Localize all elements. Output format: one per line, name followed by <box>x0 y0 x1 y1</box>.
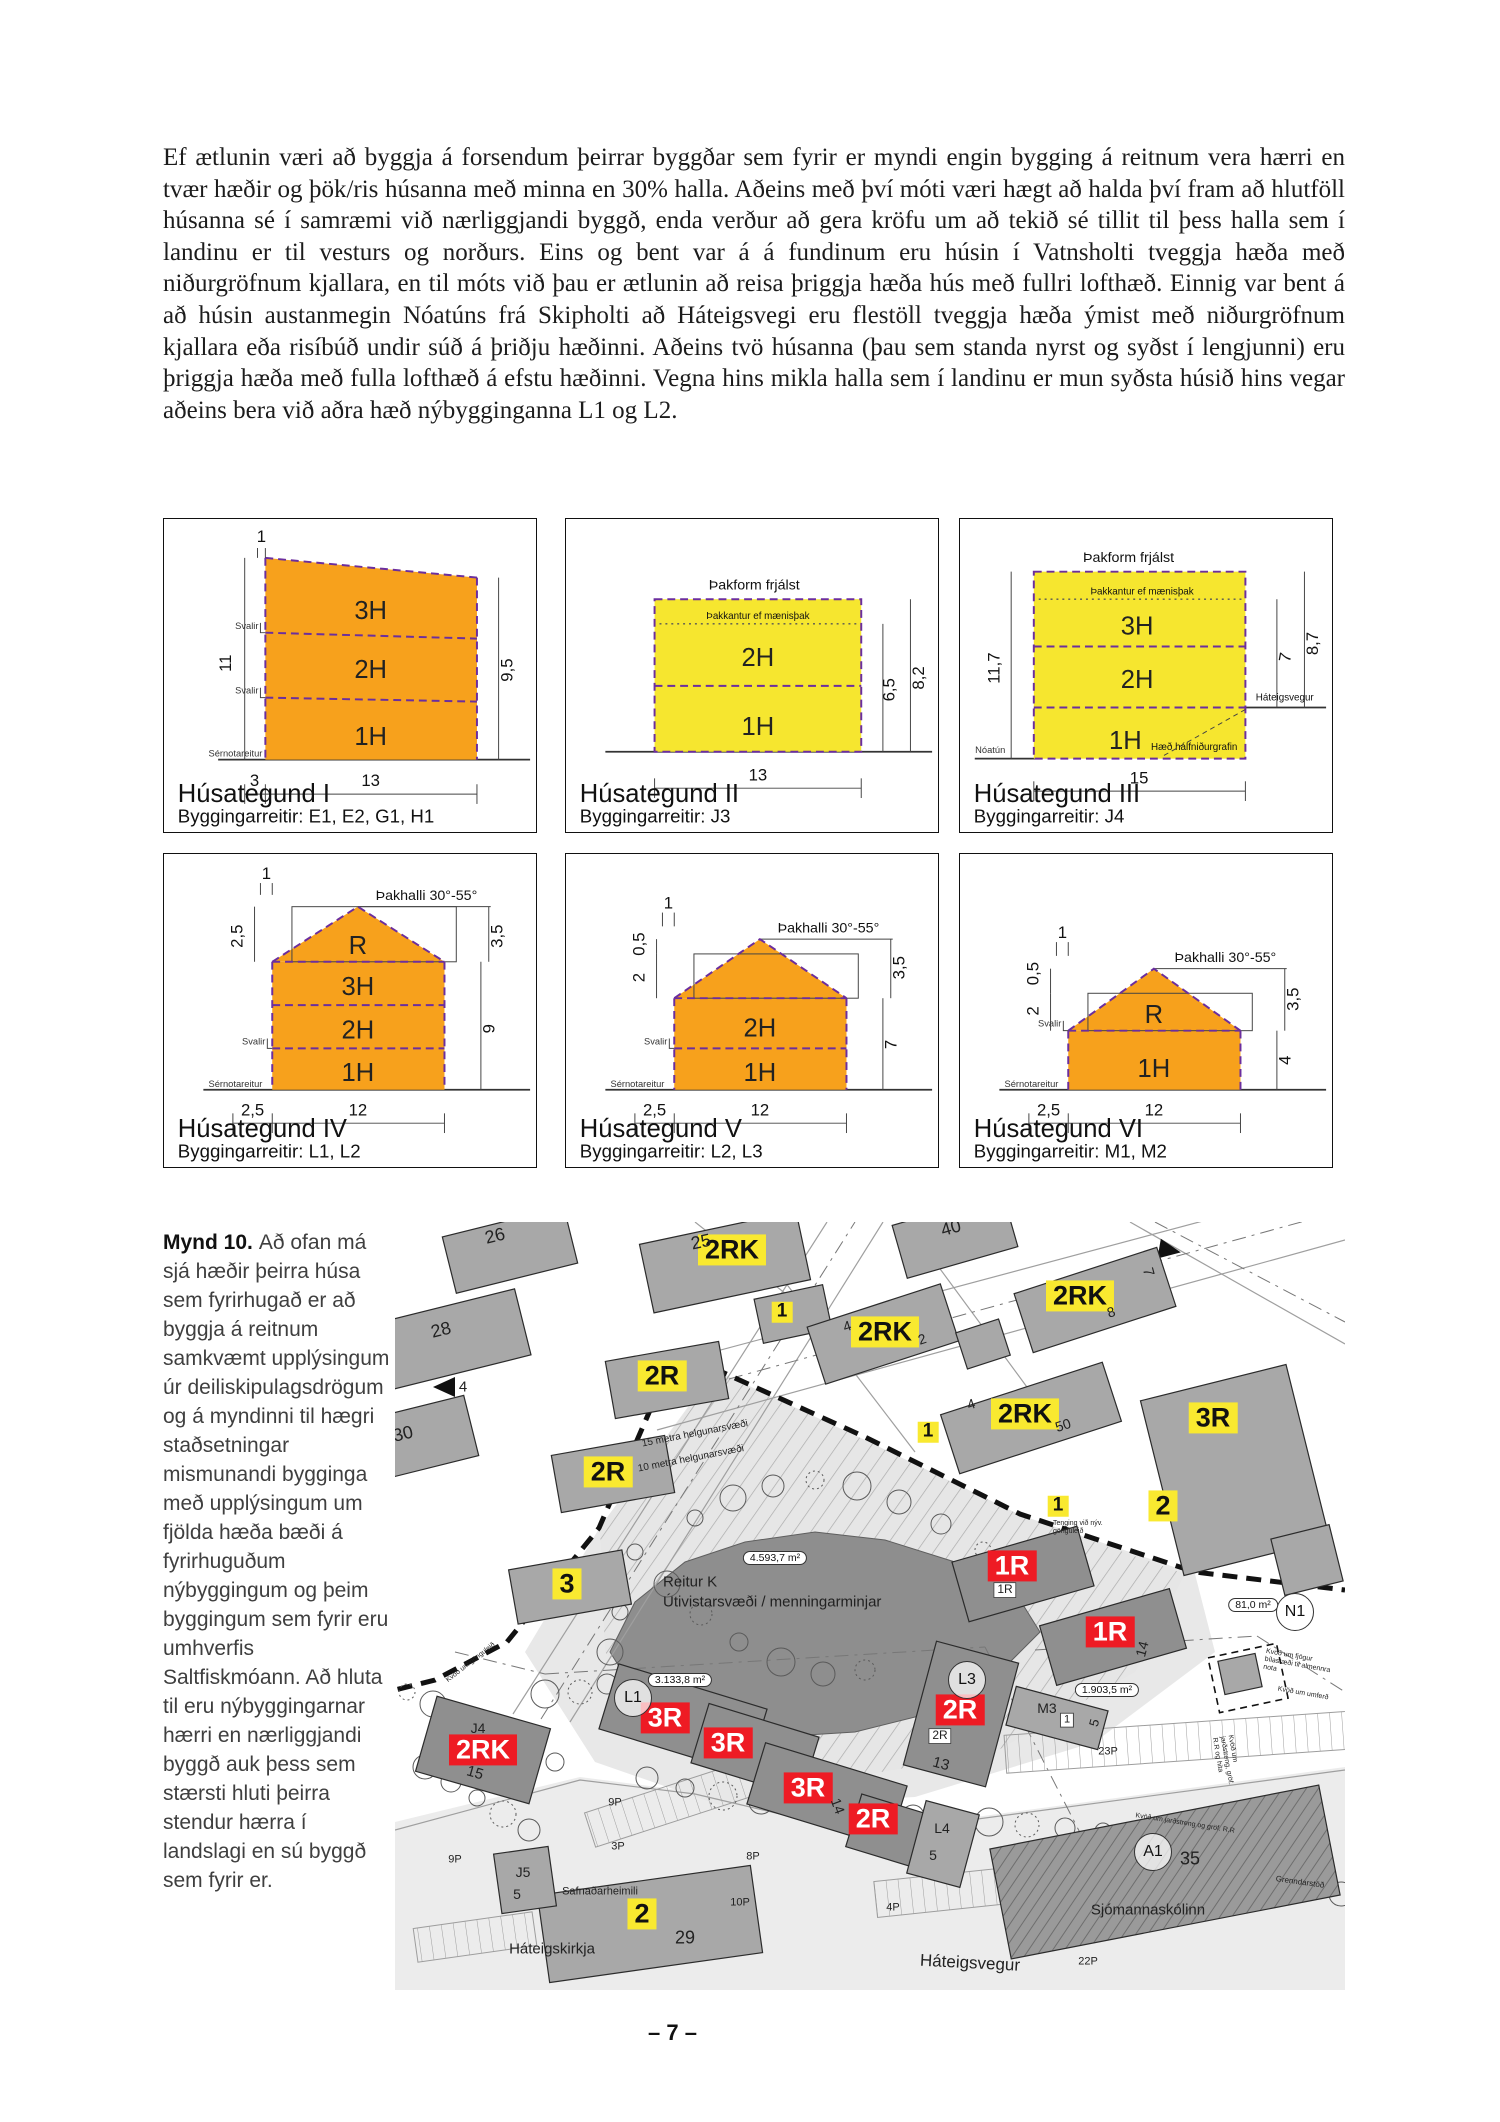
street-noatun: Nóatún <box>975 745 1005 755</box>
map-text: 40 <box>939 1222 964 1241</box>
map-text: 5 <box>513 1886 521 1902</box>
body-paragraph: Ef ætlunin væri að byggja á forsendum þe… <box>163 142 1345 426</box>
roof-edge-note: Þakkantur ef mænisþak <box>706 611 809 622</box>
dim-bottom: 12 <box>751 1100 770 1119</box>
map-marker-new-3r: 3R <box>704 1727 753 1758</box>
map-marker-existing-3r: 3R <box>1189 1402 1238 1433</box>
map-text: 8 <box>1105 1303 1117 1321</box>
dim-top: 1 <box>262 864 271 883</box>
map-text: 29 <box>675 1928 695 1949</box>
map-marker-new-2rk: 2RK <box>449 1734 517 1765</box>
dim-3-5: 3,5 <box>488 925 507 948</box>
dim-top: 1 <box>1058 923 1067 942</box>
map-marker-existing-3: 3 <box>552 1568 581 1599</box>
floor-2h: 2H <box>1121 666 1154 694</box>
map-text: 25 <box>689 1230 713 1254</box>
floor-1h: 1H <box>342 1059 375 1087</box>
map-marker-existing-1: 1 <box>1048 1496 1069 1517</box>
map-text: Háteigskirkja <box>509 1940 595 1957</box>
document-page: Ef ætlunin væri að byggja á forsendum þe… <box>0 0 1500 2122</box>
map-text: 50 <box>1053 1415 1073 1435</box>
dim-bottom: 13 <box>749 765 768 784</box>
diagram-husategund-2: Þakform frjálst Þakkantur ef mænisþak 2H… <box>566 519 938 832</box>
dim-bottom: 12 <box>349 1100 368 1119</box>
map-text: 22P <box>1078 1956 1098 1969</box>
dim-bottom: 13 <box>361 771 380 790</box>
map-text: 13 <box>931 1754 952 1775</box>
street-hateigsvegur: Háteigsvegur <box>1256 693 1315 704</box>
dim-7: 7 <box>1275 651 1295 663</box>
map-text: Safnaðarheimili <box>562 1886 638 1899</box>
panel-subtitle: Byggingarreitir: J3 <box>580 806 731 827</box>
svalir-label: Svalir <box>644 1036 667 1046</box>
map-text: Háteigsvegur <box>919 1951 1020 1976</box>
map-text: 35 <box>1180 1849 1200 1870</box>
map-text: 26 <box>483 1224 507 1249</box>
dim-4: 4 <box>1276 1056 1295 1065</box>
dim-9: 9 <box>480 1024 499 1033</box>
map-text: Kvöð um jarðstreng, gröf. R.R og hita <box>1210 1734 1245 1799</box>
panel-husategund-5: 1 Þakhalli 30°-55° 2H 1H 0,5 2 3,5 7 2,5… <box>565 853 939 1168</box>
map-marker-new-2r: 2R <box>936 1694 985 1725</box>
map-marker-new-2r: 2R <box>849 1803 898 1834</box>
svalir-label: Svalir <box>235 686 258 696</box>
map-text: 7 <box>1139 1266 1158 1279</box>
map-text: Kvöð um fjögur bílastæði til almennra no… <box>1262 1648 1337 1684</box>
roof-pitch-note: Þakhalli 30°-55° <box>778 920 880 936</box>
panel-subtitle: Byggingarreitir: L2, L3 <box>580 1141 763 1162</box>
floor-3h: 3H <box>354 597 387 625</box>
map-area-label: 3.133,8 m² <box>648 1673 712 1687</box>
panel-title: Húsategund II <box>580 780 739 808</box>
diagram-husategund-3: Þakform frjálst Þakkantur ef mænisþak 3H… <box>960 519 1332 832</box>
panel-title: Húsategund IV <box>178 1115 347 1143</box>
map-text: J5 <box>516 1864 531 1880</box>
roof-note: Þakform frjálst <box>1083 550 1174 566</box>
map-text: Sjómannaskólinn <box>1091 1901 1205 1918</box>
dim-0-5: 0,5 <box>630 932 649 955</box>
diagram-husategund-4: 1 Þakhalli 30°-55° R 3H 2H 1H 2,5 3,5 9 … <box>164 854 536 1167</box>
dim-0-5: 0,5 <box>1024 962 1043 985</box>
map-area-label: 1.903,5 m² <box>1075 1683 1139 1697</box>
map-text: 10P <box>730 1897 750 1910</box>
floor-1h: 1H <box>354 723 387 751</box>
map-labels: 2RK2RK2RK2RK1112R2R33R221R1R2RK3R3R3R2R2… <box>395 1222 1345 1990</box>
map-marker-existing-2r: 2R <box>584 1456 633 1487</box>
dim-7: 7 <box>882 1040 901 1049</box>
map-plot-label-l1: L1 <box>614 1679 652 1717</box>
roof-edge-note: Þakkantur ef mænisþak <box>1090 586 1193 597</box>
map-marker-existing-2rk: 2RK <box>851 1316 919 1347</box>
panel-title: Húsategund III <box>974 780 1140 808</box>
map-text: 3P <box>611 1841 624 1854</box>
panel-husategund-6: 1 Þakhalli 30°-55° R 1H 0,5 2 3,5 4 2,5 … <box>959 853 1333 1168</box>
page-number: – 7 – <box>0 2020 1345 2046</box>
dim-2: 2 <box>630 973 649 982</box>
roof-pitch-note: Þakhalli 30°-55° <box>376 888 478 904</box>
map-text: Útivistarsvæði / menningarminjar <box>663 1593 881 1610</box>
dim-2-5: 2,5 <box>228 925 247 948</box>
sernotareitur-label: Sérnotareitur <box>208 1079 262 1089</box>
floor-2h: 2H <box>742 644 775 672</box>
svalir-label: Svalir <box>242 1036 265 1046</box>
dim-8-2: 8,2 <box>909 666 928 689</box>
dim-top: 1 <box>257 527 266 546</box>
diagram-husategund-1: 1 11 9,5 3 13 3H 2H 1H Svalir Svalir Sér… <box>164 519 536 832</box>
figure-caption: Mynd 10.Að ofan má sjá hæðir þeirra húsa… <box>163 1228 391 1895</box>
map-marker-existing-2r: 2R <box>638 1360 687 1391</box>
dim-top: 1 <box>664 894 673 913</box>
panel-subtitle: Byggingarreitir: L1, L2 <box>178 1141 361 1162</box>
map-text: 5 <box>1087 1718 1103 1729</box>
floor-3h: 3H <box>1121 613 1154 641</box>
map-text: 4 <box>459 1378 467 1395</box>
map-plot-label-l3: L3 <box>948 1661 986 1699</box>
svalir-label: Svalir <box>1038 1019 1061 1029</box>
roof-pitch-note: Þakhalli 30°-55° <box>1175 950 1277 966</box>
map-marker-existing-2: 2 <box>627 1898 656 1929</box>
site-plan-map: 2RK2RK2RK2RK1112R2R33R221R1R2RK3R3R3R2R2… <box>395 1222 1345 1990</box>
sernotareitur-label: Sérnotareitur <box>1004 1079 1058 1089</box>
panel-husategund-2: Þakform frjálst Þakkantur ef mænisþak 2H… <box>565 518 939 833</box>
figure-label: Mynd 10. <box>163 1231 253 1254</box>
floor-3h: 3H <box>342 973 375 1001</box>
dim-11-7: 11,7 <box>984 652 1003 683</box>
panel-title: Húsategund VI <box>974 1115 1143 1143</box>
map-plot-label-a1: A1 <box>1134 1833 1172 1871</box>
floor-1h: 1H <box>744 1059 777 1087</box>
panel-husategund-4: 1 Þakhalli 30°-55° R 3H 2H 1H 2,5 3,5 9 … <box>163 853 537 1168</box>
map-text: J4 <box>471 1720 486 1736</box>
map-text: 28 <box>429 1318 453 1343</box>
floor-2h: 2H <box>342 1017 375 1045</box>
panel-subtitle: Byggingarreitir: E1, E2, G1, H1 <box>178 806 435 827</box>
map-marker-existing-2rk: 2RK <box>1046 1280 1114 1311</box>
panel-husategund-3: Þakform frjálst Þakkantur ef mænisþak 3H… <box>959 518 1333 833</box>
sernotareitur-label: Sérnotareitur <box>610 1079 664 1089</box>
map-marker-existing-1: 1 <box>918 1422 939 1443</box>
figure-caption-text: Að ofan má sjá hæðir þeirra húsa sem fyr… <box>163 1231 389 1892</box>
panel-title: Húsategund V <box>580 1115 742 1143</box>
panel-subtitle: Byggingarreitir: M1, M2 <box>974 1141 1167 1162</box>
dim-8-7: 8,7 <box>1303 632 1322 655</box>
map-marker-existing-2rk: 2RK <box>991 1398 1059 1429</box>
map-marker-new-1r: 1R <box>988 1550 1037 1581</box>
map-text: 4P <box>886 1902 899 1915</box>
map-text: 8P <box>746 1851 759 1864</box>
map-text: Kvöð um gönguleið <box>445 1641 497 1684</box>
map-text: Grenndarstöð <box>1275 1874 1325 1890</box>
map-marker-existing-1: 1 <box>772 1302 793 1323</box>
map-text: 15 <box>465 1762 486 1783</box>
roof-note: Þakform frjálst <box>709 577 800 593</box>
dim-6-5: 6,5 <box>880 678 899 701</box>
diagram-husategund-5: 1 Þakhalli 30°-55° 2H 1H 0,5 2 3,5 7 2,5… <box>566 854 938 1167</box>
roof-r: R <box>349 932 367 960</box>
floor-2h: 2H <box>744 1015 777 1043</box>
dim-3-5: 3,5 <box>890 956 909 979</box>
dim-2: 2 <box>1024 1006 1043 1015</box>
map-text: 5 <box>929 1847 937 1863</box>
map-text: 9P <box>608 1797 621 1810</box>
svalir-label: Svalir <box>235 621 258 631</box>
dim-bottom: 12 <box>1145 1100 1164 1119</box>
panel-title: Húsategund I <box>178 780 330 808</box>
map-text: Tenging við nýv. gönguleið <box>1053 1520 1113 1536</box>
map-text: M3 <box>1037 1700 1056 1716</box>
map-text: 30 <box>395 1422 415 1447</box>
map-text: 2R <box>928 1728 951 1744</box>
map-marker-existing-2: 2 <box>1148 1490 1177 1521</box>
map-text: 9P <box>448 1854 461 1867</box>
map-marker-new-1r: 1R <box>1086 1616 1135 1647</box>
map-text: 4 <box>965 1395 977 1413</box>
floor-1h: 1H <box>1138 1055 1171 1083</box>
dim-right: 9,5 <box>497 658 516 681</box>
map-marker-new-3r: 3R <box>784 1772 833 1803</box>
floor-1h: 1H <box>742 713 775 741</box>
floor-2h: 2H <box>354 656 387 684</box>
map-area-label: 4.593,7 m² <box>743 1551 807 1565</box>
map-area-label: 81,0 m² <box>1228 1598 1278 1612</box>
basement-note: Hæð hálfniðurgrafin <box>1151 742 1237 753</box>
panel-subtitle: Byggingarreitir: J4 <box>974 806 1125 827</box>
map-text: Kvöð um umferð <box>1277 1686 1329 1703</box>
map-text: 1 <box>1060 1713 1074 1728</box>
sernotareitur-label: Sérnotareitur <box>208 749 262 759</box>
map-plot-label-n1: N1 <box>1276 1593 1314 1631</box>
map-text: 1R <box>993 1582 1016 1598</box>
panel-husategund-1: 1 11 9,5 3 13 3H 2H 1H Svalir Svalir Sér… <box>163 518 537 833</box>
map-text: 23P <box>1098 1746 1118 1759</box>
diagram-husategund-6: 1 Þakhalli 30°-55° R 1H 0,5 2 3,5 4 2,5 … <box>960 854 1332 1167</box>
dim-3-5: 3,5 <box>1284 988 1303 1011</box>
roof-r: R <box>1145 1001 1163 1029</box>
map-text: 14 <box>1132 1639 1152 1658</box>
dim-left: 11 <box>216 655 235 672</box>
floor-1h: 1H <box>1109 727 1142 755</box>
map-text: Reitur K <box>663 1573 717 1590</box>
map-text: L4 <box>934 1820 950 1836</box>
